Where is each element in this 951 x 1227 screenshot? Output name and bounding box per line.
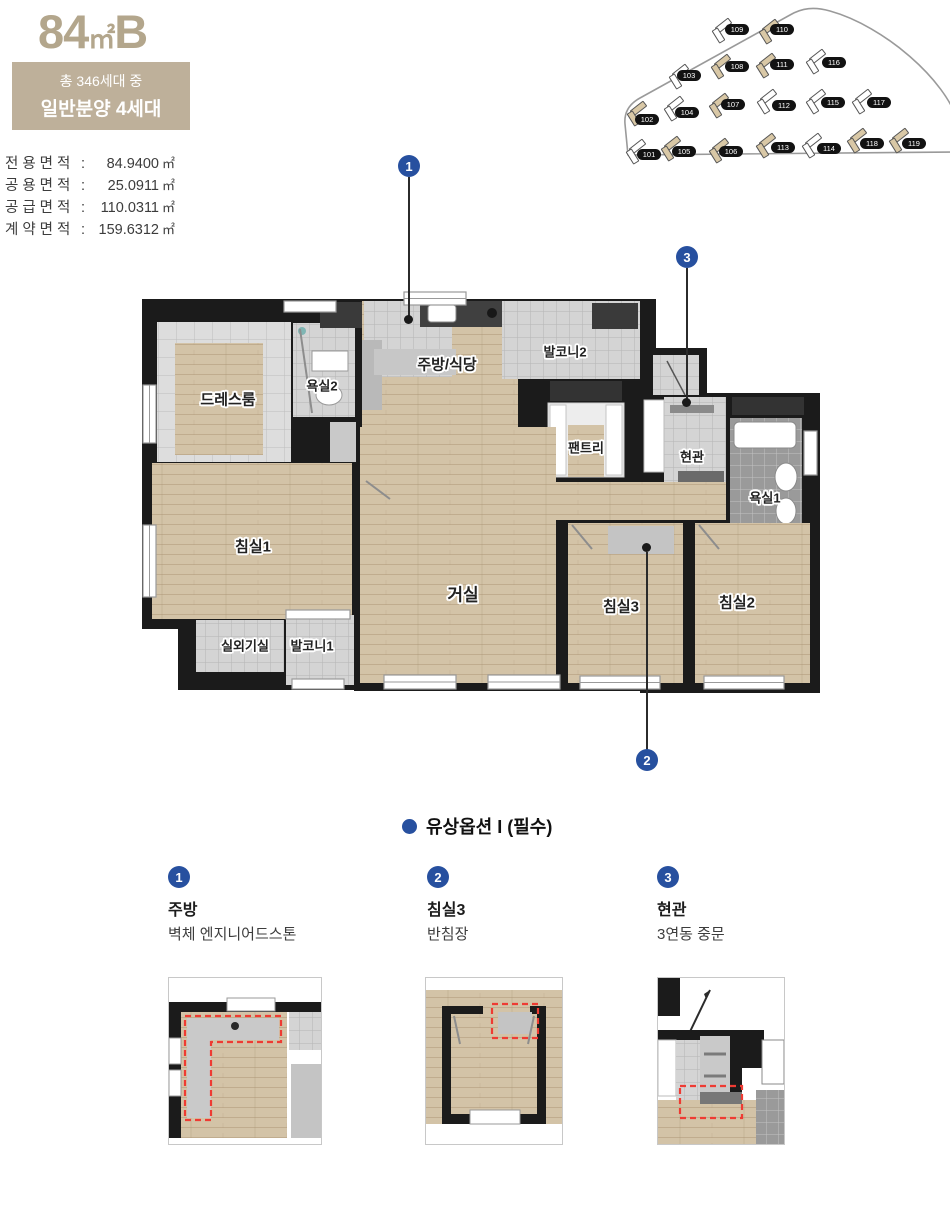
building-102-label: 102 (635, 114, 659, 125)
option-2-title: 침실3 (427, 896, 667, 920)
marker2-dot (642, 543, 651, 552)
room-label-dressroom: 드레스룸 (200, 389, 255, 410)
area-row-supply: 공급면적:110.0311㎡ (5, 196, 205, 218)
page-title: 84㎡B (38, 4, 147, 59)
building-112-label: 112 (772, 100, 796, 111)
floor-plan: 드레스룸 욕실2 주방/식당 발코니2 팬트리 현관 욕실1 침실1 거실 침실… (140, 285, 820, 695)
option-3-number: 3 (657, 866, 679, 888)
option-3-thumbnail-entrance (657, 977, 785, 1145)
entrance-vestibule (653, 355, 699, 395)
room-label-bedroom2: 침실2 (719, 592, 755, 613)
storage-box (330, 422, 356, 462)
marker-3: 3 (676, 246, 698, 268)
cooktop (487, 308, 497, 318)
paid-options-header: 유상옵션 I (필수) (402, 813, 552, 839)
site-plan: 101 102 103 104 105 106 107 108 109 110 … (616, 2, 950, 184)
marker1-dot (404, 315, 413, 324)
room-label-outdoor-unit: 실외기실 (221, 636, 269, 655)
living-floor (360, 427, 556, 683)
option-2-desc: 반침장 (427, 923, 667, 944)
badge-general-sale: 일반분양 4세대 (41, 94, 162, 121)
entrance-mat (678, 471, 724, 483)
area-row-common: 공용면적:25.0911㎡ (5, 174, 205, 196)
unit-count-badge: 총 346세대 중 일반분양 4세대 (12, 62, 190, 130)
room-label-entrance: 현관 (680, 447, 704, 466)
building-103-label: 103 (677, 70, 701, 81)
title-type-letter: B (114, 5, 147, 58)
area-row-contract: 계약면적:159.6312㎡ (5, 218, 205, 240)
room-label-bedroom1: 침실1 (235, 536, 271, 557)
bath2-basin (312, 351, 348, 371)
badge-total-units: 총 346세대 중 (60, 71, 143, 91)
area-row-exclusive: 전용면적:84.9400㎡ (5, 152, 205, 174)
option-1-thumbnail-graphic (169, 978, 321, 1144)
building-109-label: 109 (725, 24, 749, 35)
building-118-label: 118 (860, 138, 884, 149)
marker1-line (408, 177, 410, 320)
building-119-label: 119 (902, 138, 926, 149)
option-2-thumbnail-graphic (426, 978, 562, 1144)
option-1-number: 1 (168, 866, 190, 888)
building-104-label: 104 (675, 107, 699, 118)
bath1-cabinet-top (732, 397, 804, 415)
pantry-shelf-right (606, 405, 622, 475)
building-106-label: 106 (719, 146, 743, 157)
building-113-label: 113 (771, 142, 795, 153)
option-1-title: 주방 (168, 896, 408, 920)
entrance-shoe-cabinet (644, 400, 664, 472)
entrance-step (670, 405, 714, 413)
room-label-balcony2: 발코니2 (543, 342, 586, 361)
room-label-bedroom3: 침실3 (603, 596, 639, 617)
marker3-line (686, 268, 688, 400)
option-3-thumbnail-graphic (658, 978, 784, 1144)
option-1-desc: 벽체 엔지니어드스톤 (168, 923, 408, 944)
room-label-kitchen: 주방/식당 (417, 354, 476, 375)
title-area-number: 84 (38, 5, 88, 58)
bath2-shower (298, 327, 306, 335)
hallway-entrance-floor (646, 485, 726, 520)
room-label-bath1: 욕실1 (749, 488, 780, 507)
marker-2: 2 (636, 749, 658, 771)
floor-plan-page: { "header": { "title": {"main": "84", "u… (0, 0, 951, 1227)
balcony2-cabinet (592, 303, 638, 329)
option-2-thumbnail-bedroom3 (425, 977, 563, 1145)
room-label-bath2: 욕실2 (306, 376, 337, 395)
floor-plan-graphic (140, 285, 820, 695)
building-116-label: 116 (822, 57, 846, 68)
building-108-label: 108 (725, 61, 749, 72)
marker-1: 1 (398, 155, 420, 177)
building-107-label: 107 (721, 99, 745, 110)
bedroom3-closet (608, 526, 674, 554)
paid-options-title: 유상옵션 I (필수) (426, 813, 552, 839)
option-3-title: 현관 (657, 896, 897, 920)
room-label-balcony1: 발코니1 (290, 636, 333, 655)
building-105-label: 105 (672, 146, 696, 157)
room-label-living: 거실 (447, 581, 478, 606)
option-2-number: 2 (427, 866, 449, 888)
marker3-dot (682, 398, 691, 407)
marker2-line (646, 552, 648, 750)
option-2: 2 침실3 반침장 (427, 866, 667, 944)
room-label-pantry: 팬트리 (568, 438, 604, 457)
option-3-desc: 3연동 중문 (657, 923, 897, 944)
building-114-label: 114 (817, 143, 841, 154)
building-117-label: 117 (867, 97, 891, 108)
option-1: 1 주방 벽체 엔지니어드스톤 (168, 866, 408, 944)
area-table: 전용면적:84.9400㎡ 공용면적:25.0911㎡ 공급면적:110.031… (5, 152, 205, 240)
building-115-label: 115 (821, 97, 845, 108)
bullet-dot-icon (402, 819, 417, 834)
pantry-cabinet-top (550, 381, 622, 401)
option-3: 3 현관 3연동 중문 (657, 866, 897, 944)
kitchen-sink (428, 305, 456, 322)
option-1-thumbnail-kitchen (168, 977, 322, 1145)
building-111-label: 111 (770, 59, 794, 70)
building-110-label: 110 (770, 24, 794, 35)
bath1-tub (734, 422, 796, 448)
title-area-unit: ㎡ (88, 24, 114, 54)
